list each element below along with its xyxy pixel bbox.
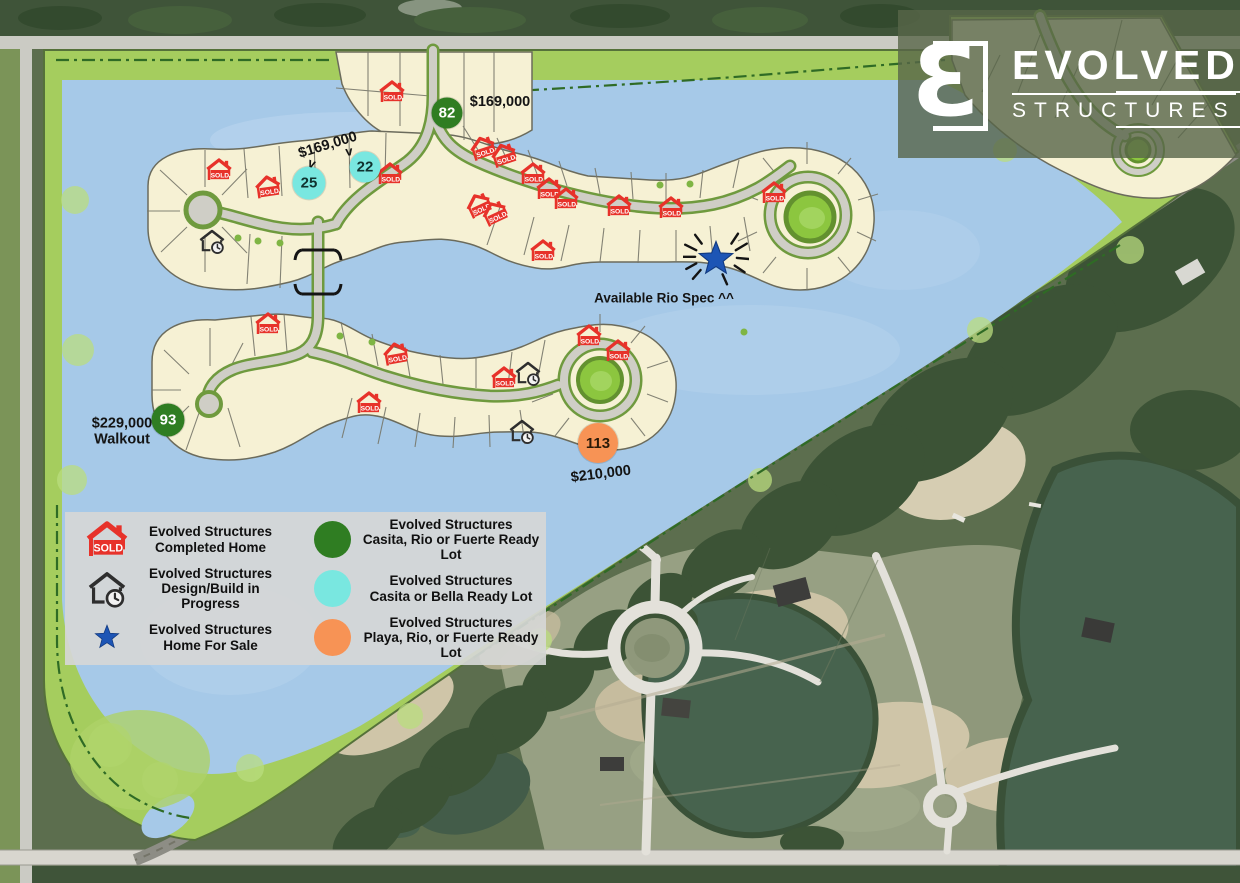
- pointer-arrow: v: [306, 155, 318, 172]
- sold-home-marker: SOLD: [574, 324, 604, 349]
- svg-text:SOLD: SOLD: [766, 195, 785, 202]
- svg-text:SOLD: SOLD: [497, 154, 517, 166]
- ready-lot-marker-113: 113: [578, 423, 618, 463]
- svg-text:SOLD: SOLD: [525, 176, 544, 183]
- pointer-arrow: v: [344, 143, 353, 159]
- svg-text:SOLD: SOLD: [361, 405, 380, 412]
- sold-home-marker: SOLD: [375, 162, 405, 187]
- svg-text:SOLD: SOLD: [472, 203, 492, 217]
- sold-home-marker: SOLD: [379, 339, 413, 369]
- legend: SOLD Evolved StructuresCompleted Home Ev…: [65, 512, 546, 665]
- brand-subname-wrap: STRUCTURES: [1012, 93, 1236, 123]
- svg-text:SOLD: SOLD: [663, 210, 682, 217]
- svg-text:SOLD: SOLD: [388, 355, 408, 365]
- sold-home-marker: SOLD: [534, 177, 564, 202]
- sold-home-marker: SOLD: [476, 195, 514, 230]
- sold-home-marker: SOLD: [518, 162, 548, 187]
- note-label: Available Rio Spec ^^: [594, 291, 734, 306]
- site-map-flyer: SOLD SOLD SOLD SOLD SOLD SOLD SOLD: [0, 0, 1240, 883]
- legend-label: Evolved StructuresCasita, Rio or Fuerte …: [362, 517, 546, 563]
- svg-text:SOLD: SOLD: [496, 380, 515, 387]
- sold-home-marker: SOLD: [460, 187, 498, 222]
- svg-text:SOLD: SOLD: [476, 147, 496, 159]
- home-for-sale-star: [683, 228, 749, 290]
- svg-text:SOLD: SOLD: [260, 326, 279, 333]
- price-label: $169,000: [297, 130, 359, 163]
- legend-item-casita-rio-fuerte-lot: Evolved StructuresCasita, Rio or Fuerte …: [290, 517, 546, 563]
- design-build-marker: [197, 228, 227, 255]
- legend-item-home-for-sale: Evolved StructuresHome For Sale: [65, 615, 290, 661]
- legend-label: Evolved StructuresCompleted Home: [137, 524, 290, 555]
- sold-home-marker: SOLD: [551, 187, 581, 212]
- svg-text:SOLD: SOLD: [260, 188, 279, 198]
- svg-text:SOLD: SOLD: [558, 201, 577, 208]
- legend-item-design-build: Evolved StructuresDesign/Build in Progre…: [65, 566, 290, 612]
- legend-label: Evolved StructuresPlaya, Rio, or Fuerte …: [362, 615, 546, 661]
- svg-text:SOLD: SOLD: [382, 176, 401, 183]
- sold-home-marker: SOLD: [377, 80, 407, 105]
- logo-box-outline: [1116, 91, 1240, 128]
- ready-lot-marker-93: 93: [152, 404, 185, 437]
- ready-lot-marker-82: 82: [432, 98, 463, 129]
- svg-text:SOLD: SOLD: [541, 191, 560, 198]
- legend-item-completed-home: SOLD Evolved StructuresCompleted Home: [65, 517, 290, 563]
- legend-label: Evolved StructuresCasita or Bella Ready …: [362, 573, 546, 604]
- sold-home-marker: SOLD: [354, 391, 384, 416]
- sold-home-marker: SOLD: [528, 239, 558, 264]
- svg-text:SOLD: SOLD: [384, 94, 403, 101]
- price-label: $210,000: [570, 464, 632, 487]
- sold-home-marker: SOLD: [603, 339, 633, 364]
- legend-label: Evolved StructuresHome For Sale: [137, 622, 290, 653]
- sold-home-marker: SOLD: [204, 158, 234, 183]
- svg-text:SOLD: SOLD: [488, 211, 508, 225]
- price-label: $229,000Walkout: [92, 416, 152, 447]
- sold-home-marker: SOLD: [604, 194, 634, 219]
- logo-letter: Ɛ: [912, 32, 980, 132]
- sold-home-marker: SOLD: [251, 173, 284, 202]
- design-build-marker: [507, 418, 537, 445]
- brand-banner: Ɛ EVOLVED STRUCTURES: [898, 10, 1240, 158]
- sold-home-marker: SOLD: [489, 366, 519, 391]
- legend-item-casita-bella-lot: Evolved StructuresCasita or Bella Ready …: [290, 566, 546, 612]
- sold-home-marker: SOLD: [486, 138, 522, 171]
- sold-home-marker: SOLD: [656, 196, 686, 221]
- svg-text:SOLD: SOLD: [535, 253, 554, 260]
- design-build-marker: [513, 360, 543, 387]
- price-label: $169,000: [470, 95, 530, 111]
- svg-text:SOLD: SOLD: [611, 208, 630, 215]
- legend-item-playa-rio-fuerte-lot: Evolved StructuresPlaya, Rio, or Fuerte …: [290, 615, 546, 661]
- star-icon: [77, 616, 137, 659]
- brand-name: EVOLVED: [1012, 45, 1240, 86]
- svg-text:SOLD: SOLD: [581, 338, 600, 345]
- svg-text:SOLD: SOLD: [211, 172, 230, 179]
- ready-lot-marker-22: 22: [350, 152, 381, 183]
- legend-label: Evolved StructuresDesign/Build in Progre…: [137, 566, 290, 612]
- svg-text:SOLD: SOLD: [94, 542, 124, 554]
- orange-lot-icon: [302, 619, 362, 656]
- green-lot-icon: [302, 521, 362, 558]
- brand-wordmark: EVOLVED STRUCTURES: [1012, 45, 1240, 123]
- sold-home-marker: SOLD: [759, 181, 789, 206]
- design-build-icon: [77, 569, 137, 608]
- sold-home-marker: SOLD: [465, 131, 501, 164]
- svg-text:SOLD: SOLD: [610, 353, 629, 360]
- ready-lot-marker-25: 25: [293, 167, 326, 200]
- cyan-lot-icon: [302, 570, 362, 607]
- sold-home-icon: SOLD: [77, 520, 137, 560]
- brand-logo-icon: Ɛ: [914, 32, 992, 136]
- sold-home-marker: SOLD: [253, 312, 283, 337]
